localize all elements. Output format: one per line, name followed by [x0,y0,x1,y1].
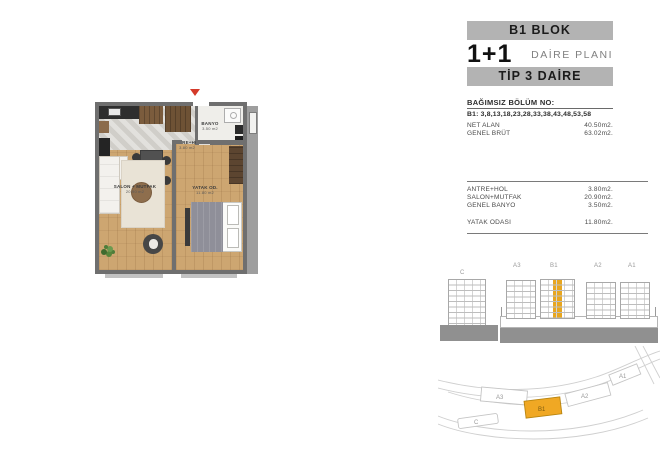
net-area-label: NET ALAN [467,122,500,130]
window-sill-living [105,274,163,278]
site-label-a3: A3 [496,395,504,401]
divider-top [467,181,648,182]
shaft-window [249,112,257,134]
wall-bedroom-top-b [196,140,247,144]
kitchen-side-table [99,121,109,133]
site-plan: A3 A2 A1 C B1 [438,346,660,463]
wall-living-bedroom [172,144,176,270]
building-a3 [506,280,536,319]
floor-plan: BANYO 3.50 m2 ANTRE+HOL 3.80 m2 [95,98,260,283]
header-underline [467,108,613,109]
ground-left [440,325,498,341]
bathroom-sink [235,125,243,134]
building-a2-floors [587,283,615,318]
living-label: SALON+MUTFAK [467,194,522,202]
shower-drain [230,112,237,119]
wardrobe [229,146,243,184]
room-row-living: SALON+MUTFAK 20.90m2. [467,194,613,202]
bathroom-plan-label: BANYO 3.50 m2 [196,121,224,131]
closet-2 [165,106,191,132]
unit-type-row: 1+1 DAİRE PLANI [467,43,613,66]
building-a2 [586,282,616,319]
bathroom-area: 3.50 m2 [196,126,224,131]
room-row-bedroom: YATAK ODASI 11.80m2. [467,219,613,227]
armchair-throw [149,239,158,249]
divider-bottom [467,233,648,234]
independent-section-header: BAĞIMSIZ BÖLÜM NO: [467,98,613,107]
site-label-b1: B1 [538,407,546,413]
elevation-label-a1: A1 [628,263,636,269]
building-elevation: C A3 B1 A2 A1 [440,263,658,345]
elevation-label-a2: A2 [594,263,602,269]
wall-bedroom-top-a [172,140,182,144]
platform-post [501,307,502,316]
elevation-label-c: C [460,270,465,276]
bedroom-plan-label: YATAK OD. 11.80 m2 [183,185,227,195]
tip-title-bar: TİP 3 DAİRE [467,67,613,86]
room-row-bathroom: GENEL BANYO 3.50m2. [467,202,613,210]
bed-blanket [191,202,223,252]
site-label-a1: A1 [619,374,627,380]
bed-bench [185,208,190,246]
bedroom-area: 11.80 m2 [183,190,227,195]
pillow [227,205,239,225]
living-plan-label: SALON + MUTFAK 20.90 m2 [107,184,163,194]
building-a3-floors [507,281,535,318]
building-a1-floors [621,283,649,318]
bedroom-label: YATAK ODASI [467,219,511,227]
window-sill-bedroom [181,274,237,278]
unit-type-suffix: DAİRE PLANI [531,49,613,61]
net-area-row: NET ALAN 40.50m2. [467,122,613,130]
block-title-bar: B1 BLOK [467,21,613,40]
bedroom-value: 11.80m2. [585,219,613,227]
gross-area-row: GENEL BRÜT 63.02m2. [467,130,613,138]
site-label-a2: A2 [581,394,589,400]
kitchen-sink [108,108,121,116]
building-b1 [540,279,575,319]
building-b1-floors [541,280,574,318]
closet-1 [139,106,163,124]
gross-area-value: 63.02m2. [584,130,613,138]
gross-area-label: GENEL BRÜT [467,130,510,138]
unit-type: 1+1 [467,43,512,66]
elevation-label-b1: B1 [550,263,558,269]
building-c [448,279,486,327]
net-area-value: 40.50m2. [584,122,613,130]
bathroom-label: GENEL BANYO [467,202,516,210]
plan-sheet: B1 BLOK 1+1 DAİRE PLANI TİP 3 DAİRE BAĞI… [0,0,660,463]
living-area: 20.90 m2 [107,189,163,194]
site-buildings [457,364,640,429]
room-row-hall: ANTRE+HOL 3.80m2. [467,186,613,194]
site-label-c: C [474,420,479,426]
living-value: 20.90m2. [584,194,613,202]
plant [104,245,108,249]
pillow [227,228,239,248]
ground-right [500,328,658,343]
building-c-floors [449,280,485,326]
independent-section-numbers: B1: 3,8,13,18,23,28,33,38,43,48,53,58 [467,111,647,118]
platform-post [655,307,656,316]
building-a1 [620,282,650,319]
entrance-arrow-icon [190,89,200,96]
bathroom-value: 3.50m2. [588,202,613,210]
hall-value: 3.80m2. [588,186,613,194]
elevation-label-a3: A3 [513,263,521,269]
site-plan-drawing: A3 A2 A1 C B1 [438,346,660,463]
hall-label: ANTRE+HOL [467,186,508,194]
